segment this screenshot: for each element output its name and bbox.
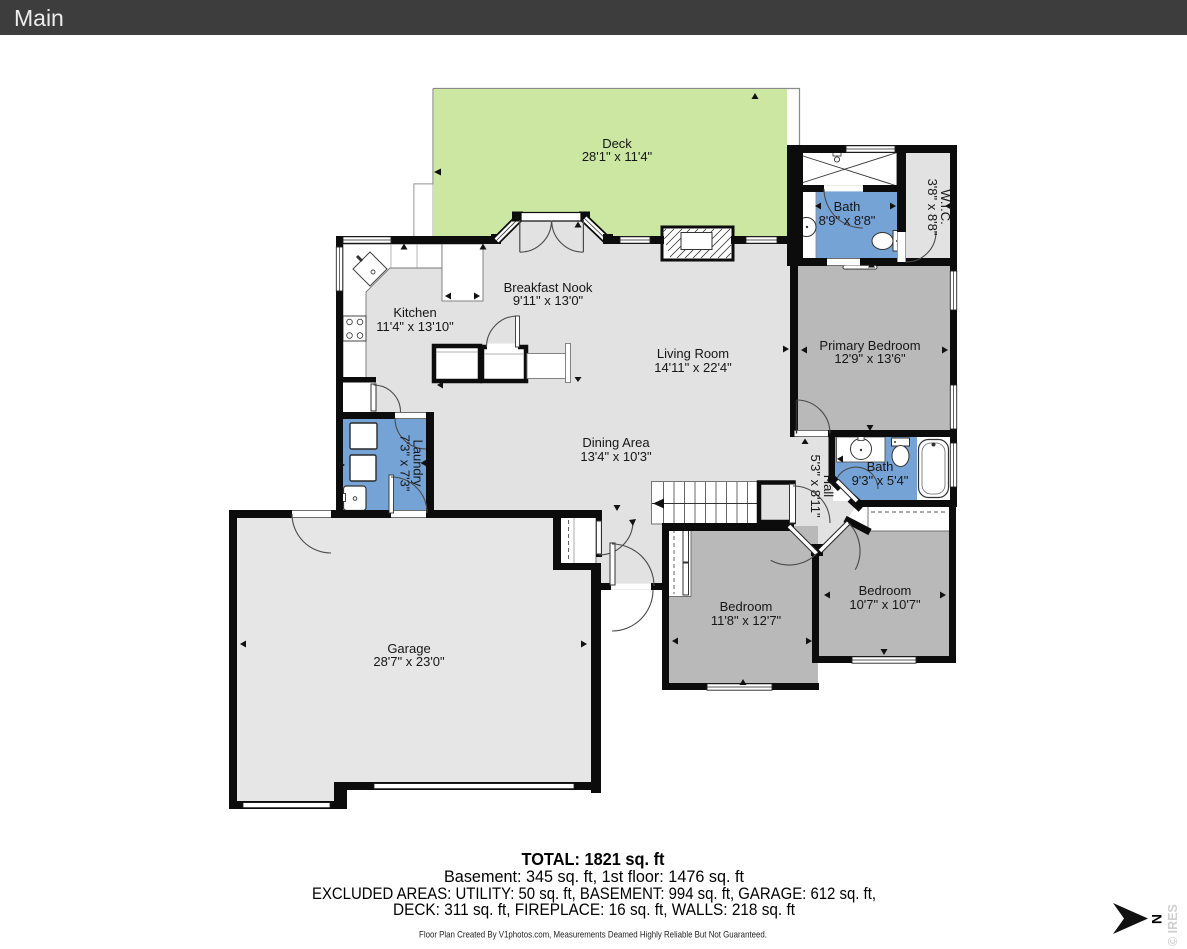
svg-text:Floor Plan Created By V1photos: Floor Plan Created By V1photos.com, Meas…	[419, 930, 767, 941]
svg-text:Bath: Bath	[834, 199, 861, 214]
svg-text:Kitchen: Kitchen	[393, 305, 436, 320]
svg-text:8'9" x 8'8": 8'9" x 8'8"	[819, 213, 876, 228]
svg-text:5'3" x 8'11": 5'3" x 8'11"	[808, 454, 823, 517]
svg-text:9'11" x 13'0": 9'11" x 13'0"	[513, 293, 584, 308]
svg-text:Basement: 345 sq. ft, 1st floo: Basement: 345 sq. ft, 1st floor: 1476 sq…	[444, 868, 744, 886]
svg-text:DECK: 311 sq. ft, FIREPLACE: 1: DECK: 311 sq. ft, FIREPLACE: 16 sq. ft, …	[393, 901, 795, 919]
svg-text:13'4" x 10'3": 13'4" x 10'3"	[580, 449, 652, 464]
svg-text:7'3" x 7'3": 7'3" x 7'3"	[398, 435, 413, 492]
svg-text:Living Room: Living Room	[657, 346, 729, 361]
svg-text:12'9" x 13'6": 12'9" x 13'6"	[834, 351, 906, 366]
svg-text:28'1" x 11'4": 28'1" x 11'4"	[582, 149, 653, 164]
svg-text:3'8" x 8'8": 3'8" x 8'8"	[925, 179, 940, 236]
svg-text:Bedroom: Bedroom	[720, 599, 773, 614]
svg-text:© IRES: © IRES	[1166, 904, 1180, 946]
svg-text:28'7" x 23'0": 28'7" x 23'0"	[373, 654, 445, 669]
svg-text:Main: Main	[14, 5, 64, 31]
svg-text:9'3" x 5'4": 9'3" x 5'4"	[852, 473, 909, 488]
svg-text:Bedroom: Bedroom	[859, 583, 912, 598]
svg-text:14'11" x 22'4": 14'11" x 22'4"	[654, 360, 732, 375]
svg-text:10'7" x 10'7": 10'7" x 10'7"	[849, 597, 921, 612]
svg-text:11'8" x 12'7": 11'8" x 12'7"	[711, 613, 782, 628]
svg-text:N: N	[1149, 914, 1165, 924]
svg-text:Dining Area: Dining Area	[582, 435, 650, 450]
svg-text:TOTAL: 1821 sq. ft: TOTAL: 1821 sq. ft	[522, 849, 665, 869]
svg-text:11'4" x 13'10": 11'4" x 13'10"	[376, 319, 454, 334]
svg-text:Bath: Bath	[867, 459, 894, 474]
